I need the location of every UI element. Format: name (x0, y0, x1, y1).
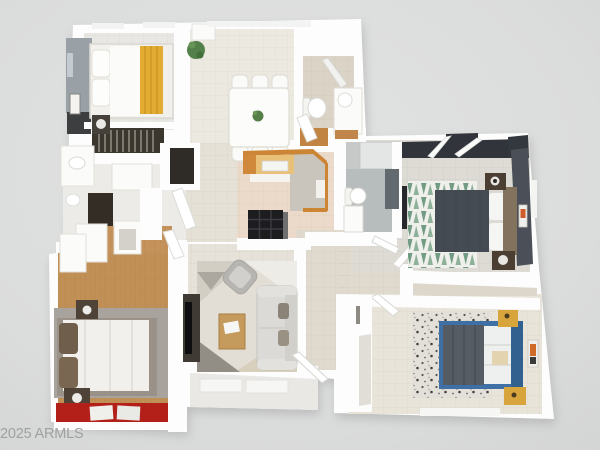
svg-text:2025 ARMLS: 2025 ARMLS (0, 426, 83, 442)
